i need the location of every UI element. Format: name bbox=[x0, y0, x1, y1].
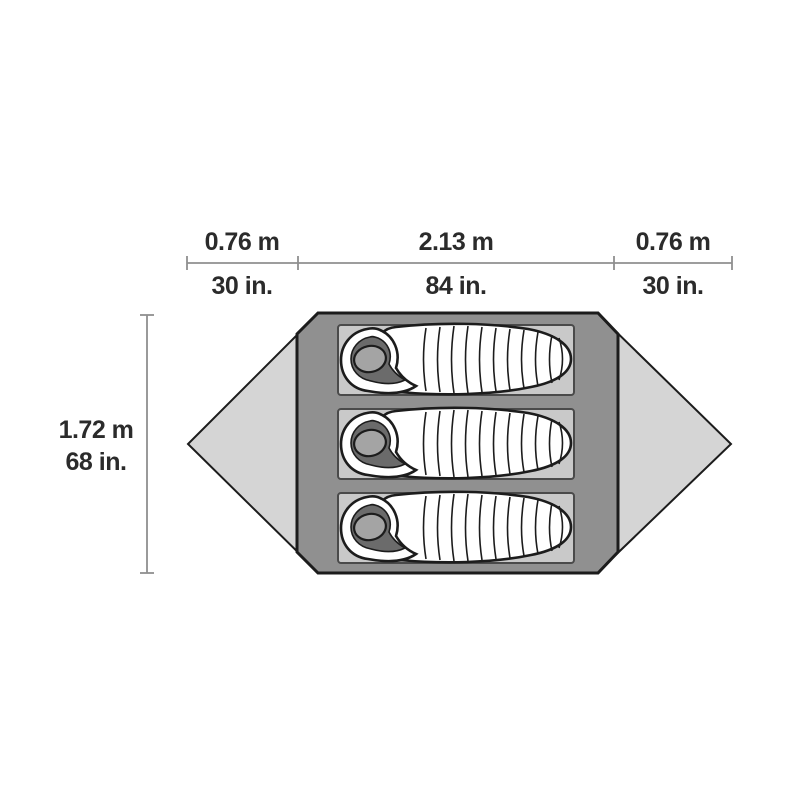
top-center-metric-label: 2.13 m bbox=[419, 228, 494, 256]
top-left-metric-label: 0.76 m bbox=[205, 228, 280, 256]
top-left-imperial-label: 30 in. bbox=[212, 272, 273, 300]
top-dimension-line bbox=[187, 256, 732, 270]
diagram-canvas: 0.76 m 30 in. 2.13 m 84 in. 0.76 m 30 in… bbox=[0, 0, 800, 800]
side-dimension-line bbox=[140, 315, 154, 573]
side-metric-label: 1.72 m bbox=[59, 416, 134, 444]
side-imperial-label: 68 in. bbox=[66, 448, 127, 476]
sleeping-spot-1 bbox=[338, 324, 574, 395]
tent-dimension-diagram: 0.76 m 30 in. 2.13 m 84 in. 0.76 m 30 in… bbox=[0, 0, 800, 800]
top-right-metric-label: 0.76 m bbox=[636, 228, 711, 256]
sleeping-bag bbox=[341, 324, 571, 394]
sleeping-bag bbox=[341, 408, 571, 478]
top-right-imperial-label: 30 in. bbox=[643, 272, 704, 300]
sleeping-spot-3 bbox=[338, 492, 574, 563]
top-center-imperial-label: 84 in. bbox=[426, 272, 487, 300]
sleeping-bag bbox=[341, 492, 571, 562]
sleeping-spot-2 bbox=[338, 408, 574, 479]
